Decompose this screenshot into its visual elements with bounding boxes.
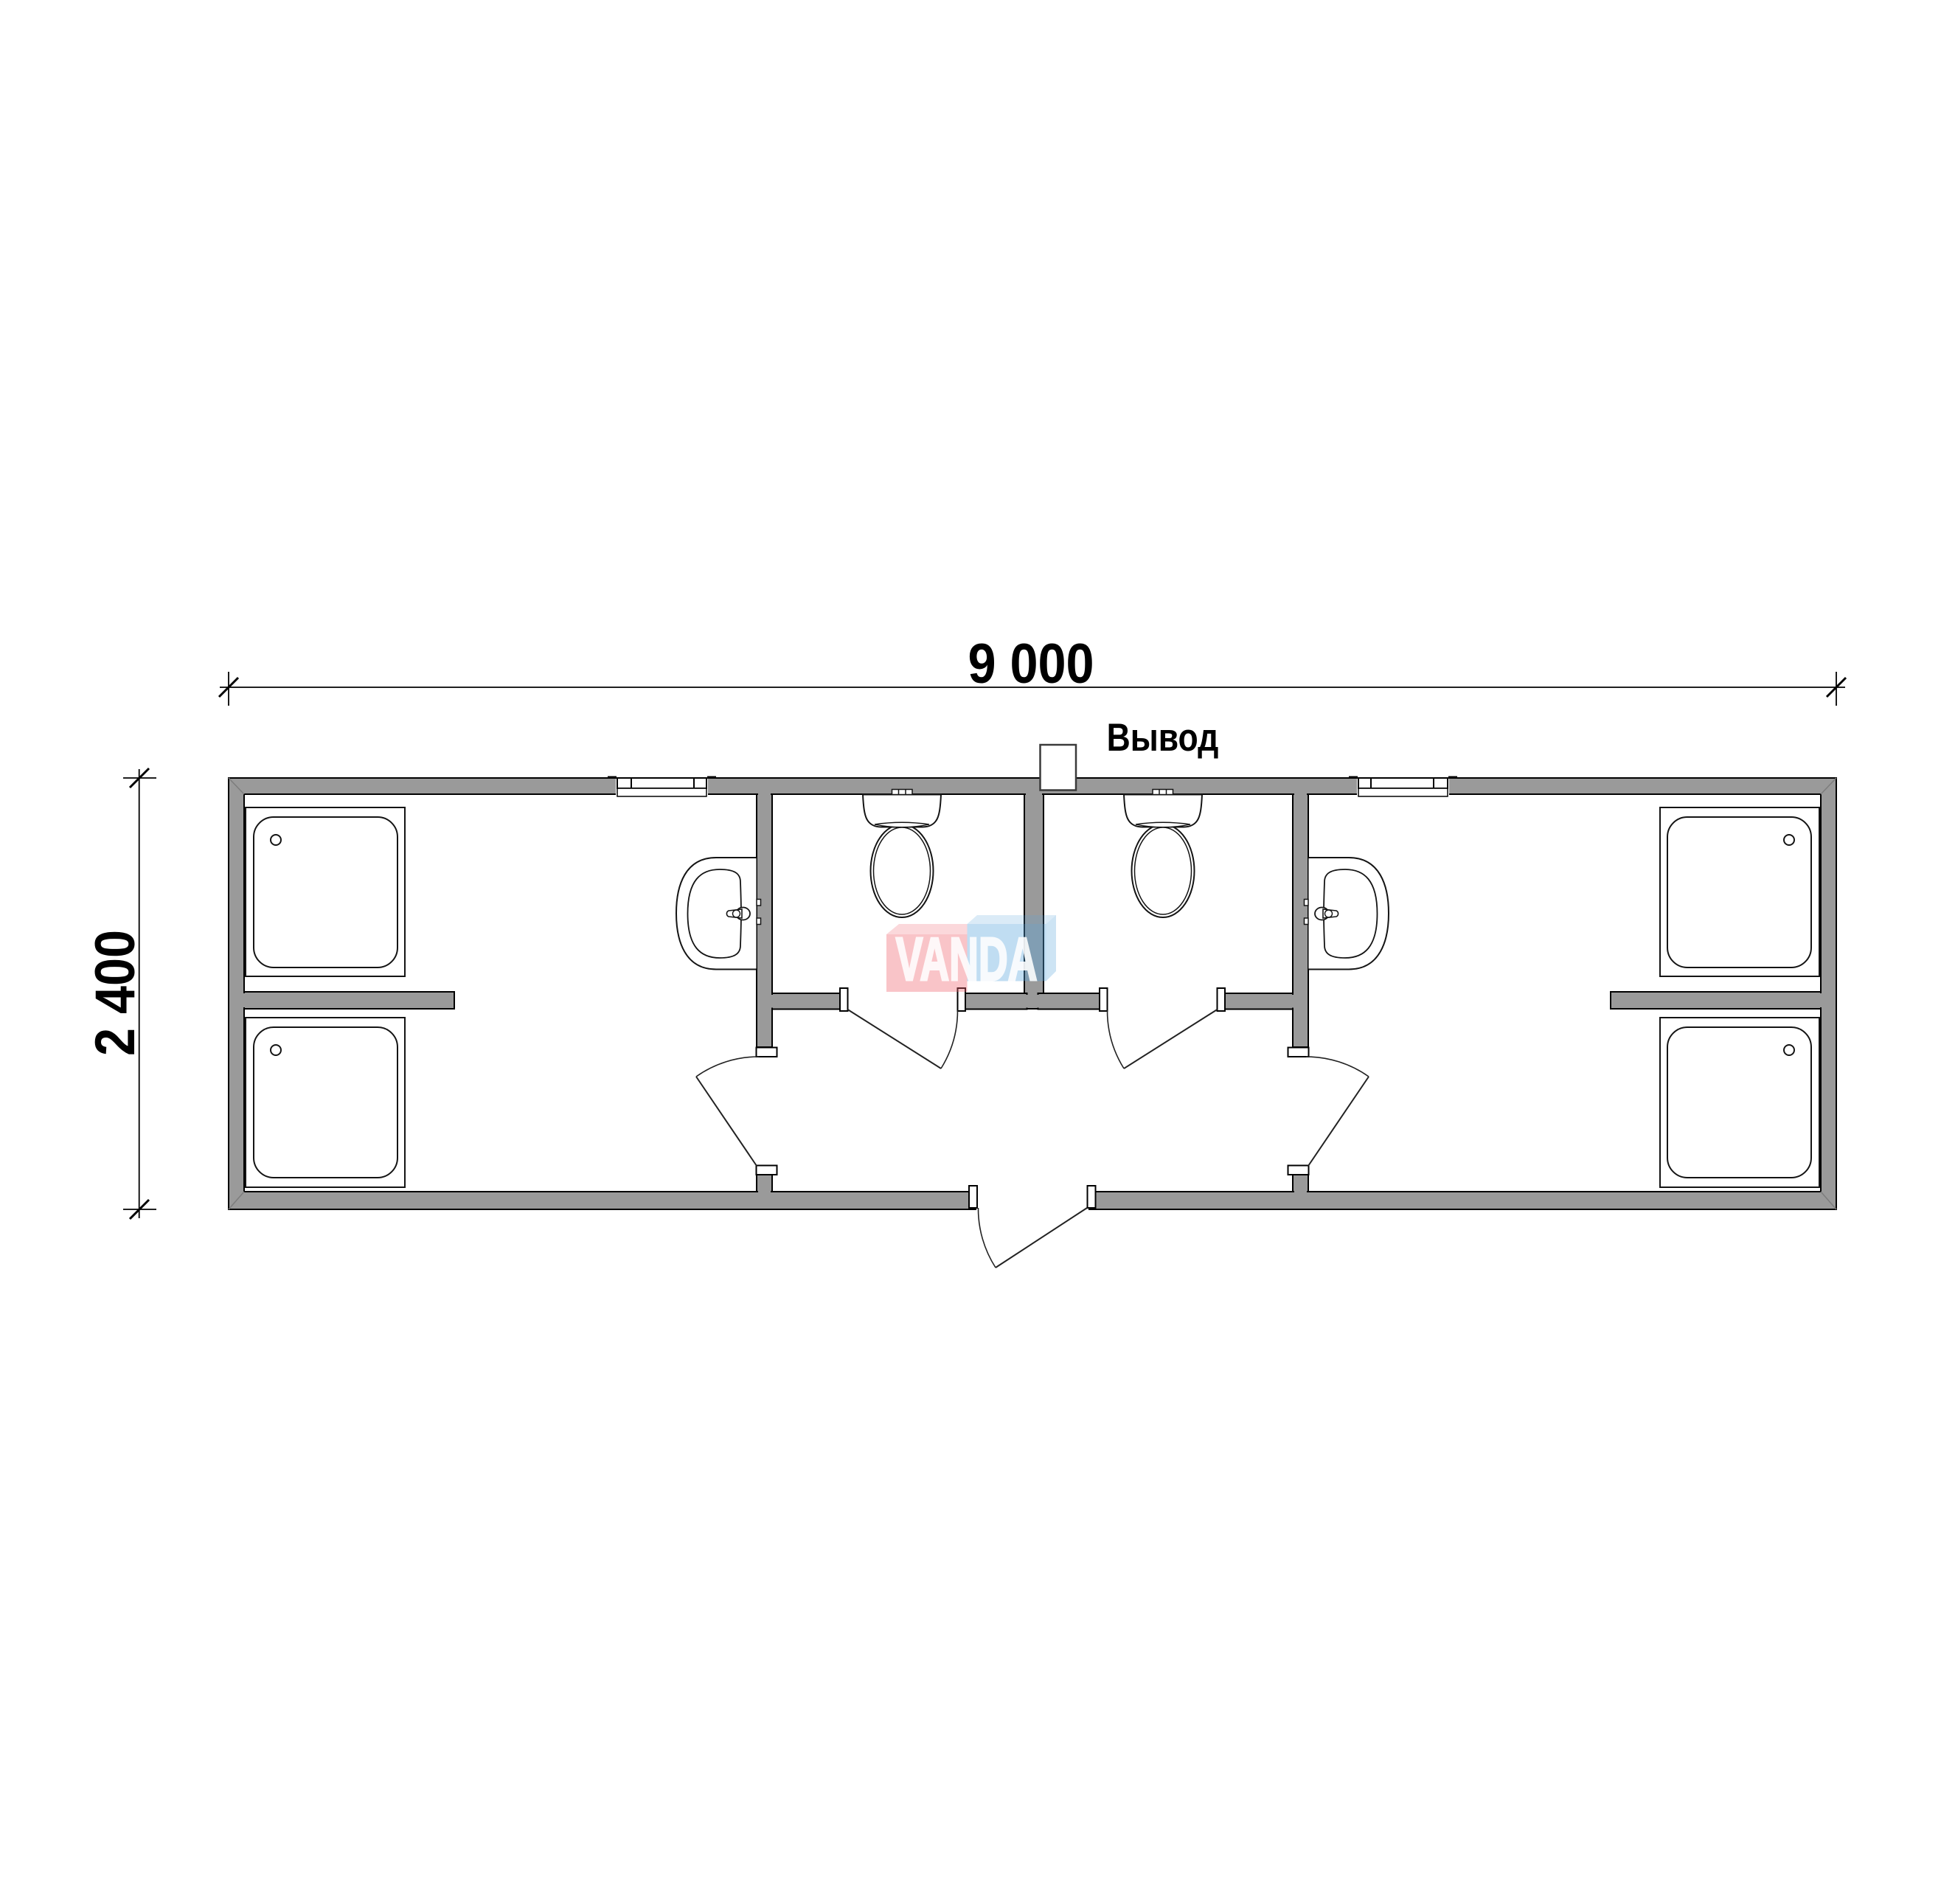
svg-text:2 400: 2 400 [85,930,147,1056]
svg-text:Вывод: Вывод [1107,716,1219,759]
svg-text:9 000: 9 000 [968,633,1094,695]
svg-text:VANDA: VANDA [896,924,1038,993]
